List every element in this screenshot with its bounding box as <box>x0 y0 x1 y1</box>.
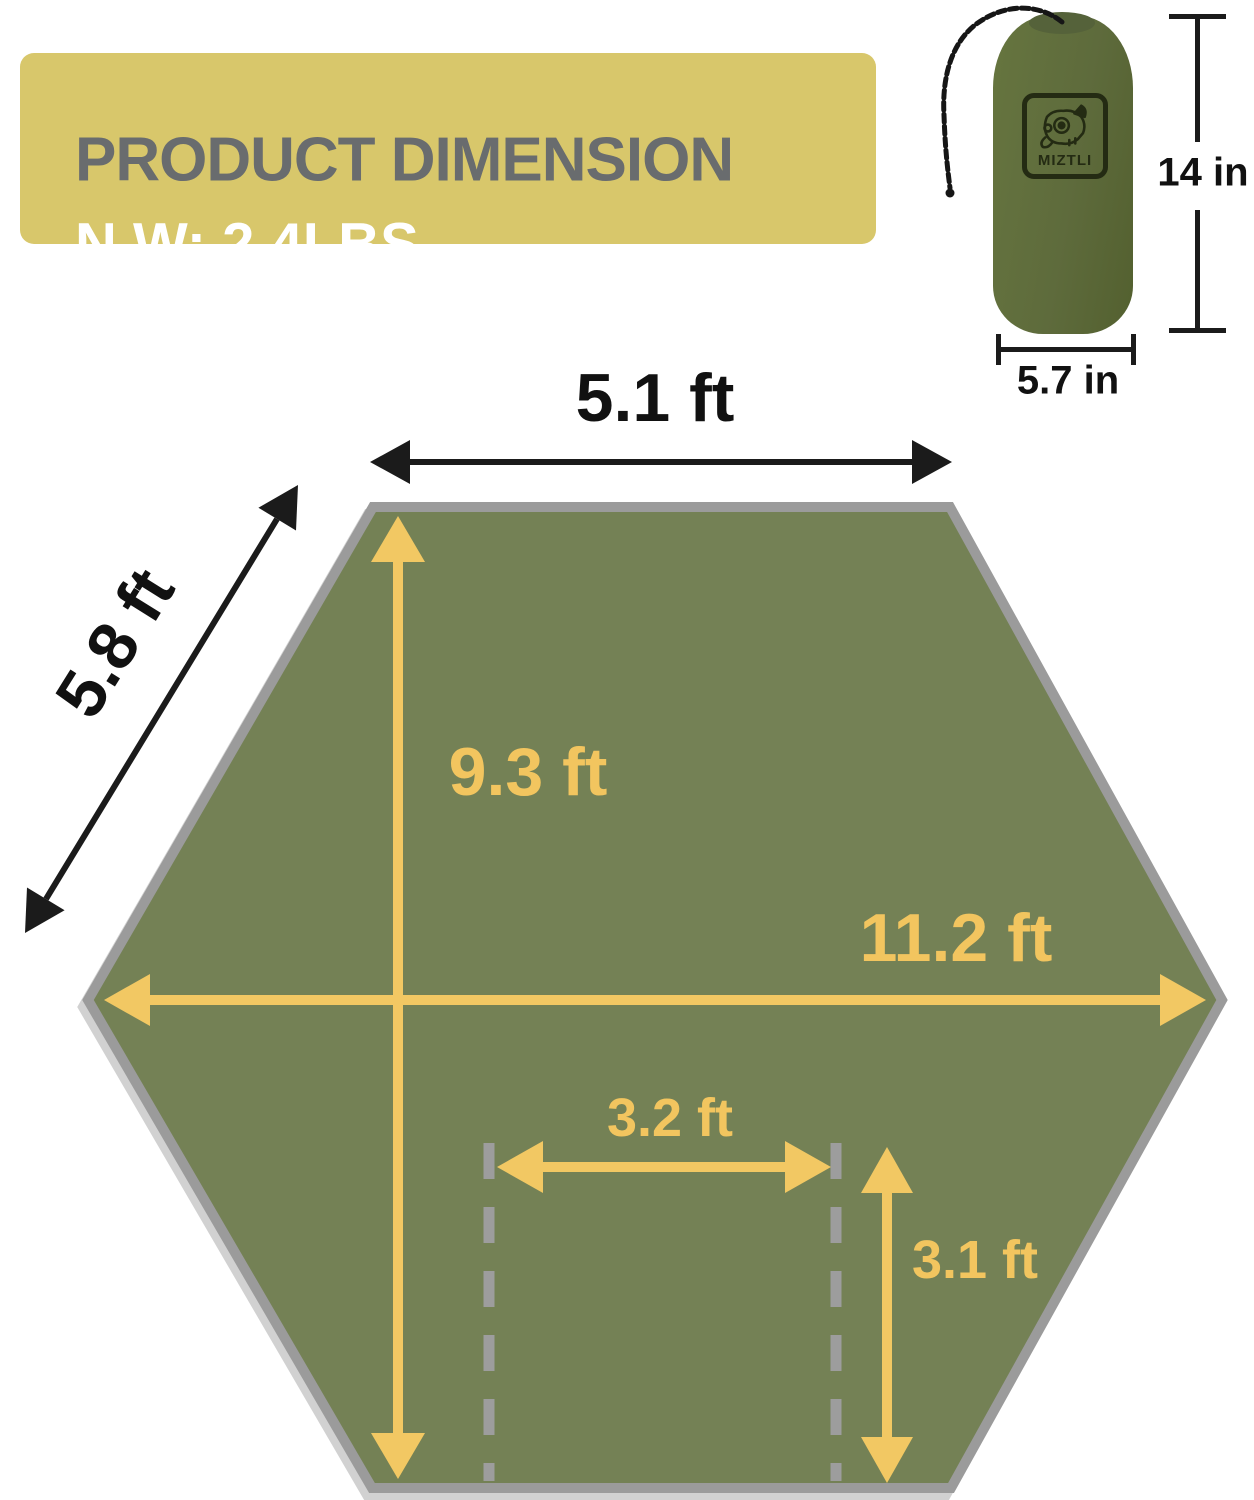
product-dimension-infographic: PRODUCT DIMENSION N.W: 2.4LBS MIZTLI 14 <box>0 0 1254 1500</box>
height-label: 9.3 ft <box>449 733 608 811</box>
top-edge-label: 5.1 ft <box>576 359 735 437</box>
inner-width-label: 3.2 ft <box>607 1087 733 1149</box>
width-label: 11.2 ft <box>860 899 1053 977</box>
inner-height-label: 3.1 ft <box>912 1229 1038 1291</box>
tarp-diagram <box>0 0 1254 1500</box>
top-edge-arrow <box>370 440 952 484</box>
